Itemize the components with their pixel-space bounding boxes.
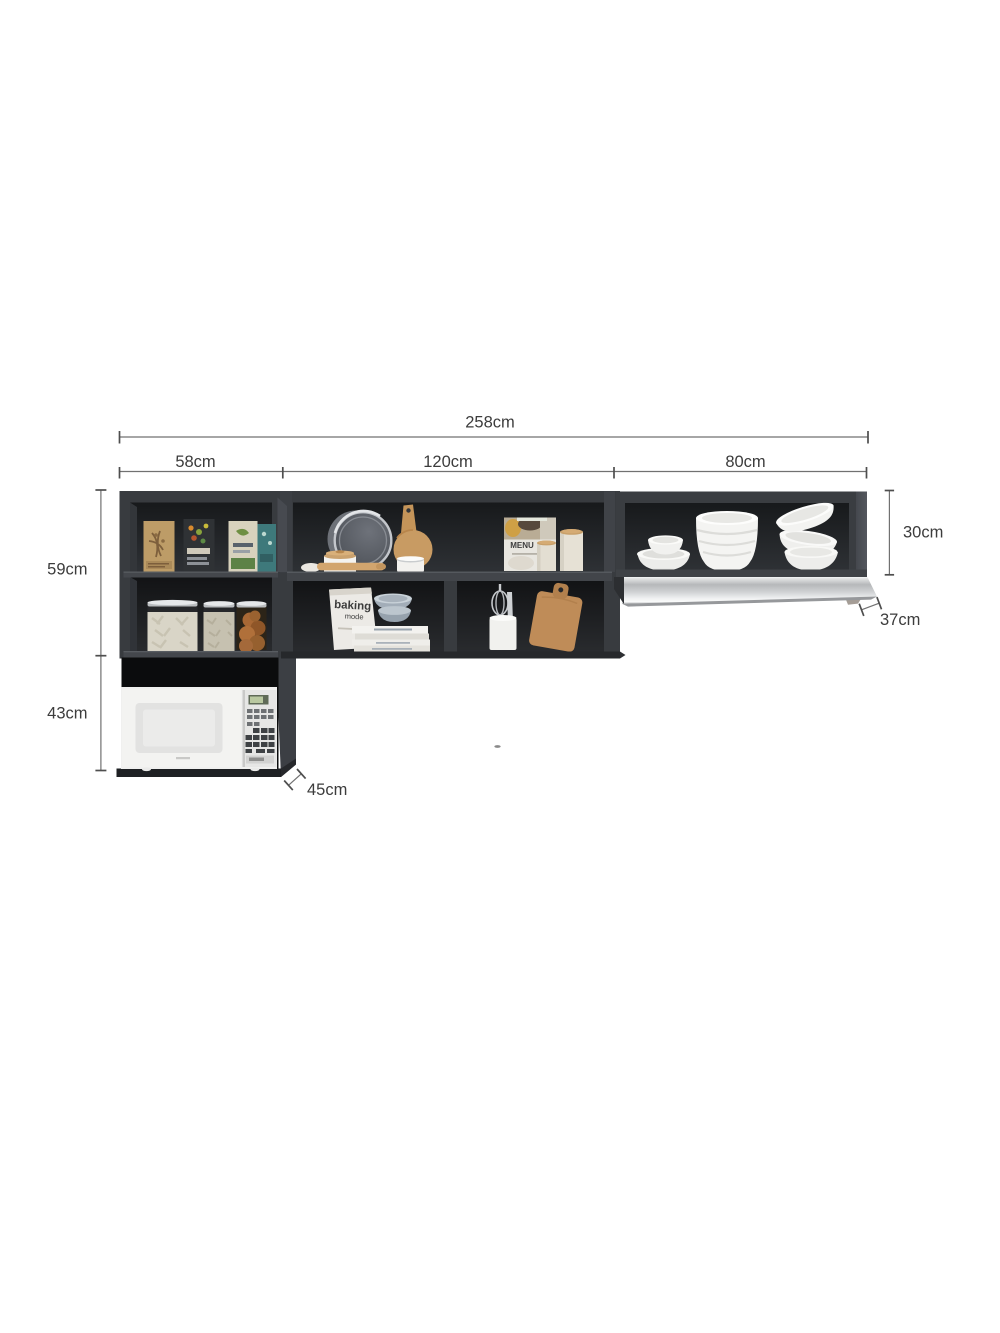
svg-text:43cm: 43cm [47, 705, 87, 723]
svg-text:120cm: 120cm [423, 453, 473, 471]
svg-text:258cm: 258cm [465, 414, 515, 432]
svg-text:MENU: MENU [510, 541, 534, 550]
svg-text:baking: baking [334, 599, 372, 613]
svg-text:80cm: 80cm [725, 453, 765, 471]
svg-text:37cm: 37cm [880, 611, 920, 629]
svg-text:mode: mode [345, 612, 364, 622]
svg-text:45cm: 45cm [307, 781, 347, 799]
svg-text:30cm: 30cm [903, 524, 943, 542]
svg-text:58cm: 58cm [175, 453, 215, 471]
svg-text:59cm: 59cm [47, 561, 87, 579]
